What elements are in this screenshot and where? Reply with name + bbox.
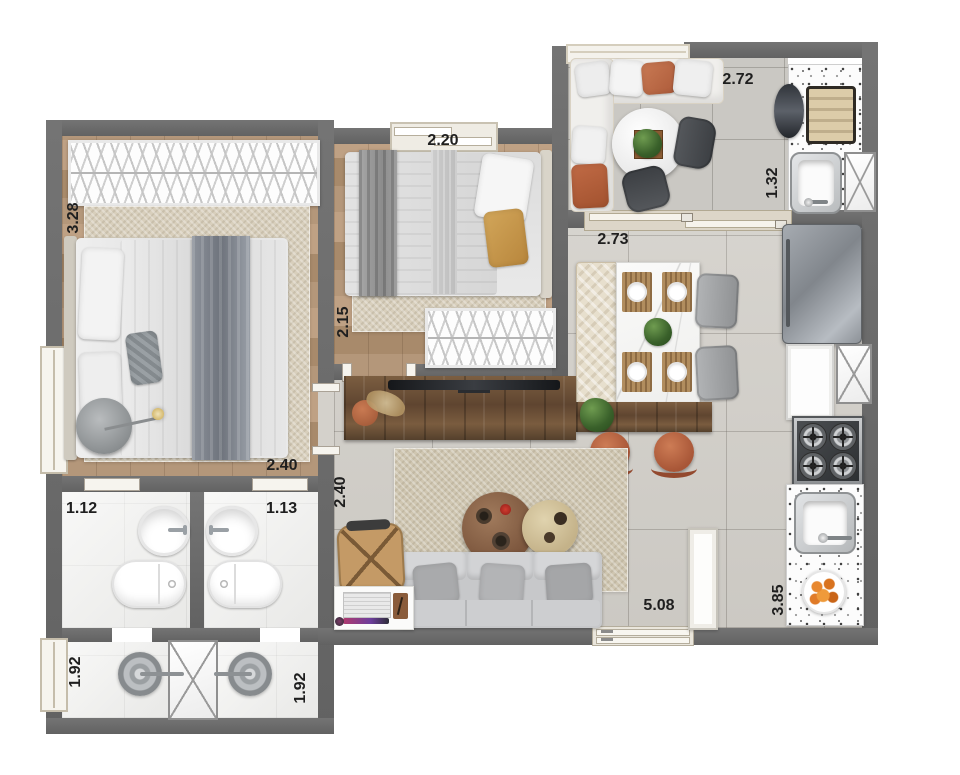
tv-stand: [458, 390, 490, 393]
stove-burner: [829, 452, 857, 480]
laptop-screen-bar: [343, 618, 389, 624]
grill-grate: [806, 86, 856, 144]
sink-faucet-base: [818, 533, 828, 543]
bathroom1-sink: [138, 506, 190, 556]
dim-bedroom2-depth: 2.15: [335, 300, 353, 344]
master-door-opening: [318, 390, 334, 446]
dim-grill-counter-depth: 1.32: [764, 161, 782, 205]
kitchen-sink: [794, 492, 856, 554]
desk-chair: [336, 522, 406, 595]
stove-burner: [799, 452, 827, 480]
balcony-pillow-orange: [571, 163, 609, 209]
toilet-seat-line: [234, 564, 236, 604]
toilet-flush-button: [220, 580, 228, 588]
notebook: [393, 593, 408, 619]
floor-plan: 3.28 2.40 2.20 2.15 2.72 1.32 2.73 2.40 …: [0, 0, 960, 775]
table-tray-item: [476, 508, 492, 524]
fruit-bowl: [802, 570, 846, 614]
wall-master-top: [46, 120, 334, 136]
dim-shower1: 1.92: [67, 650, 85, 694]
placemat: [622, 352, 652, 392]
bathroom2-sink: [206, 506, 258, 556]
desk-mouse: [335, 617, 344, 626]
plate: [667, 282, 687, 302]
dim-kitchen-depth: 3.85: [770, 578, 788, 622]
wall-shower-top-c: [300, 628, 318, 642]
plate: [627, 362, 647, 382]
balcony-pillow-orange: [641, 61, 678, 96]
grill-sink: [790, 152, 842, 214]
sink-faucet: [211, 528, 229, 532]
wall-shower-top-a: [62, 628, 112, 642]
barbecue-kettle: [774, 84, 804, 138]
bathroom1-toilet: [112, 560, 186, 608]
shaft-kitchen: [836, 344, 872, 404]
dim-bathroom1: 1.12: [66, 500, 106, 518]
island-plant: [580, 398, 614, 432]
balcony-pillow: [574, 60, 612, 98]
stove-cooktop: [792, 416, 864, 486]
table-flower: [500, 504, 511, 515]
living-sliding-door: [592, 626, 694, 646]
dim-shower2: 1.92: [292, 666, 310, 710]
dim-master-width: 2.40: [260, 457, 304, 475]
dining-banquette: [576, 262, 618, 406]
bathroom2-sliding-door: [252, 478, 308, 491]
counter-stool: [654, 432, 694, 472]
railing-line: [570, 51, 686, 53]
dim-bedroom2-width: 2.20: [421, 132, 465, 150]
kitchen-cabinet-counter: [786, 344, 834, 420]
dim-dining-width: 2.73: [591, 231, 635, 249]
stove-burner: [799, 423, 827, 451]
refrigerator: [782, 224, 862, 344]
pen: [397, 597, 403, 615]
bed-headboard: [540, 150, 552, 298]
toilet-seat-line: [158, 564, 160, 604]
bathroom2-toilet: [208, 560, 282, 608]
sink-faucet-handle: [209, 525, 213, 535]
master-door-jamb-bottom: [312, 446, 340, 455]
stove-burner: [829, 423, 857, 451]
bathroom1-sliding-door: [84, 478, 140, 491]
sliding-pane: [685, 220, 785, 228]
bedroom2-bed: [345, 150, 552, 298]
sliding-pane: [589, 213, 691, 221]
bedroom2-wardrobe: [425, 308, 556, 368]
bed-throw-drape: [359, 150, 397, 296]
shaft-showers: [168, 640, 218, 720]
dining-chair: [695, 345, 740, 401]
dim-living-width: 5.08: [637, 597, 681, 615]
balcony-pillow: [571, 125, 608, 165]
plate: [627, 282, 647, 302]
laptop-keyboard: [343, 592, 391, 618]
entry-door-leaf: [688, 528, 718, 630]
fridge-handle: [786, 239, 790, 327]
sink-faucet-base: [804, 198, 813, 207]
bed-pillow: [78, 247, 125, 341]
dining-centerpiece-plant: [644, 318, 672, 346]
balcony-pillow: [672, 58, 714, 98]
bed-throw-blanket: [192, 236, 250, 460]
shower1-arm: [140, 672, 184, 676]
bed-throw-drape: [431, 150, 457, 294]
dim-living-depth: 2.40: [332, 470, 350, 514]
table-plant: [633, 129, 662, 158]
wall-top-right-exterior: [684, 42, 878, 58]
floor-lamp-bulb: [152, 408, 164, 420]
desk: [334, 586, 414, 630]
balcony-pillow: [608, 59, 645, 98]
toilet-flush-button: [168, 580, 176, 588]
master-wardrobe: [68, 140, 320, 206]
chair-back: [346, 519, 390, 531]
dim-master-depth: 3.28: [65, 196, 83, 240]
wall-bath-divider: [190, 492, 204, 628]
living-sofa: [398, 552, 602, 628]
sliding-handle: [601, 638, 613, 641]
coffee-table-small: [522, 500, 578, 556]
dim-balcony-width: 2.72: [716, 71, 760, 89]
placemat: [662, 352, 692, 392]
placemat: [622, 272, 652, 312]
sliding-handle: [601, 630, 613, 633]
sink-faucet-handle: [183, 525, 187, 535]
table-tray-item: [492, 532, 510, 550]
shaft-grill-area: [844, 152, 876, 212]
table-tray-item: [554, 512, 567, 525]
shower-window: [40, 638, 68, 712]
sliding-handle: [681, 213, 693, 222]
master-door-jamb-top: [312, 383, 340, 392]
bed-pillow-mustard: [483, 208, 530, 268]
dim-bathroom2: 1.13: [266, 500, 306, 518]
shower2-arm: [214, 672, 252, 676]
placemat: [662, 272, 692, 312]
sofa-seat: [400, 600, 600, 626]
balcony-sliding-door: [584, 210, 792, 231]
wall-bottom-left-exterior: [46, 718, 334, 734]
dining-chair: [695, 273, 740, 329]
plate: [667, 362, 687, 382]
table-tray-item: [544, 532, 555, 543]
tv: [388, 380, 560, 390]
